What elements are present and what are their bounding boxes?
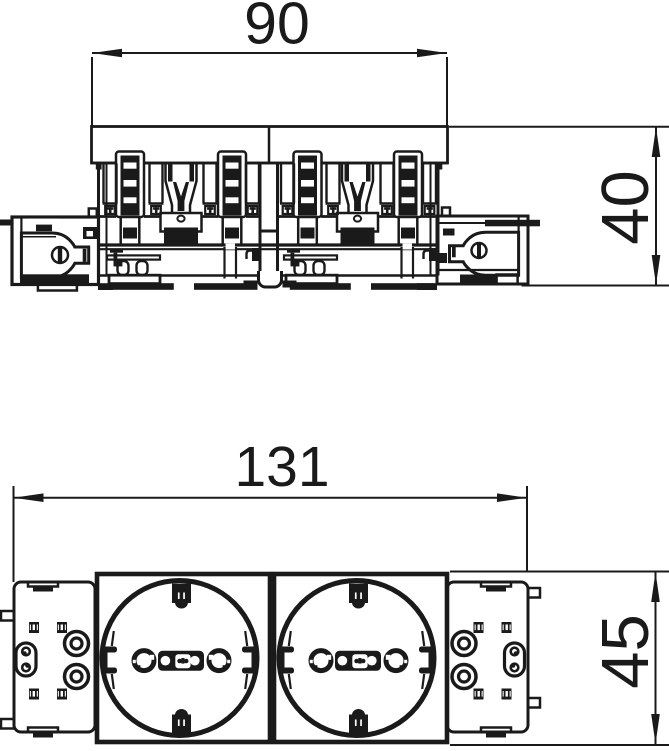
svg-text:40: 40 [588,170,663,245]
svg-text:131: 131 [234,435,329,499]
svg-text:45: 45 [588,614,663,689]
svg-text:90: 90 [244,0,310,57]
